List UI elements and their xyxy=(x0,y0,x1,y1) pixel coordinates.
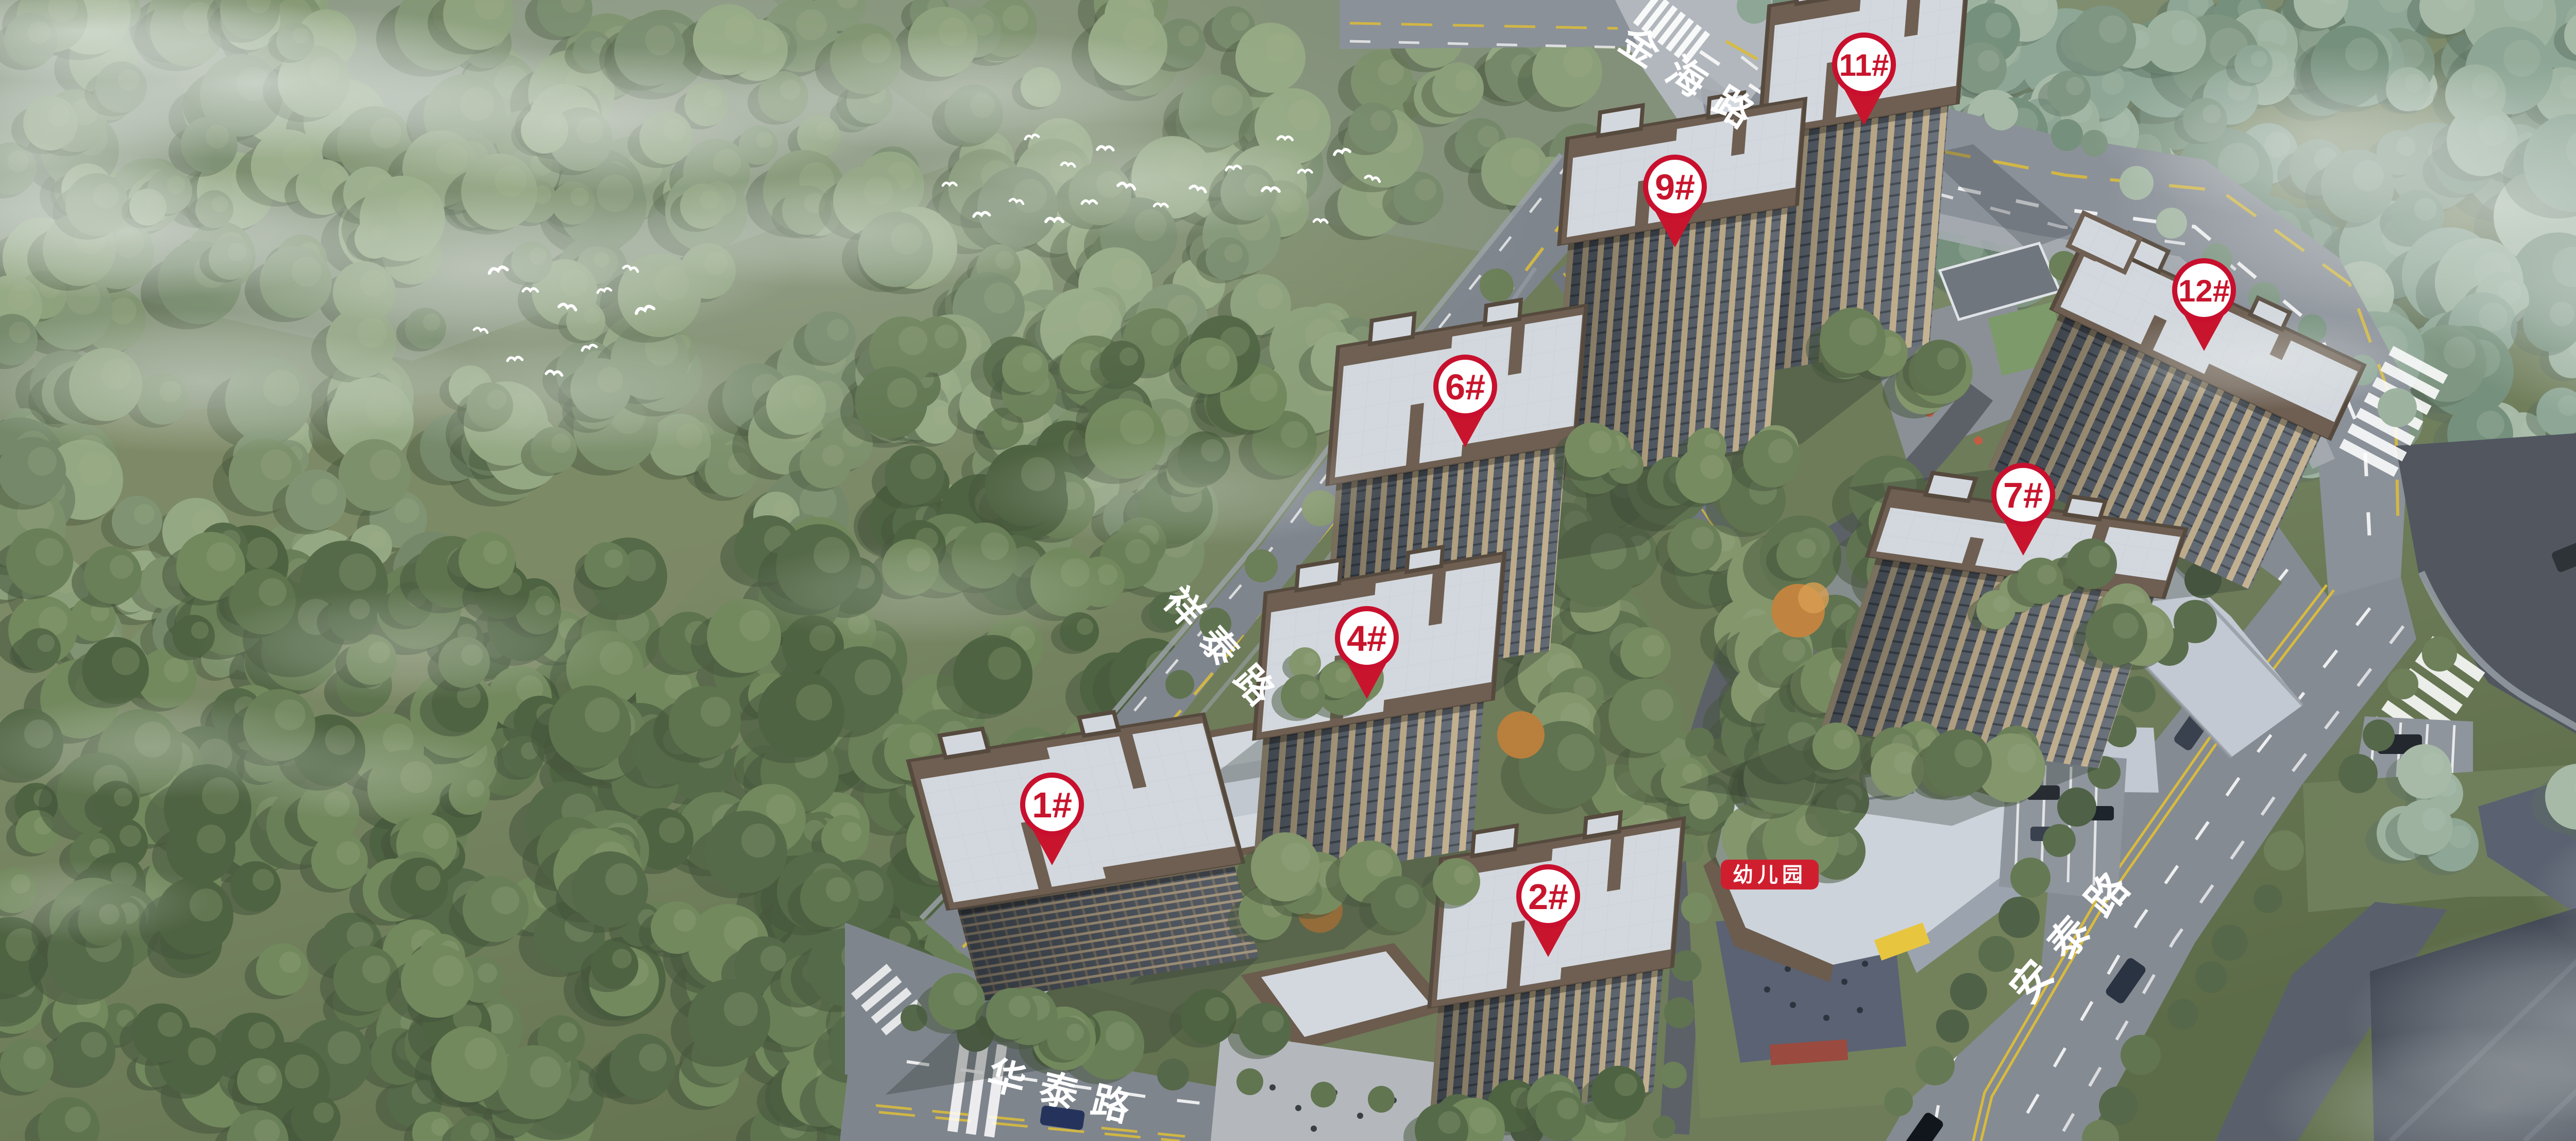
svg-text:6#: 6# xyxy=(1445,367,1485,407)
svg-text:7#: 7# xyxy=(2003,475,2043,515)
svg-text:2#: 2# xyxy=(1528,877,1568,917)
svg-text:幼儿园: 幼儿园 xyxy=(1733,864,1807,886)
svg-text:12#: 12# xyxy=(2178,274,2230,308)
svg-text:1#: 1# xyxy=(1032,785,1072,825)
svg-text:11#: 11# xyxy=(1839,48,1889,82)
svg-text:9#: 9# xyxy=(1655,167,1695,207)
svg-text:4#: 4# xyxy=(1347,618,1387,659)
